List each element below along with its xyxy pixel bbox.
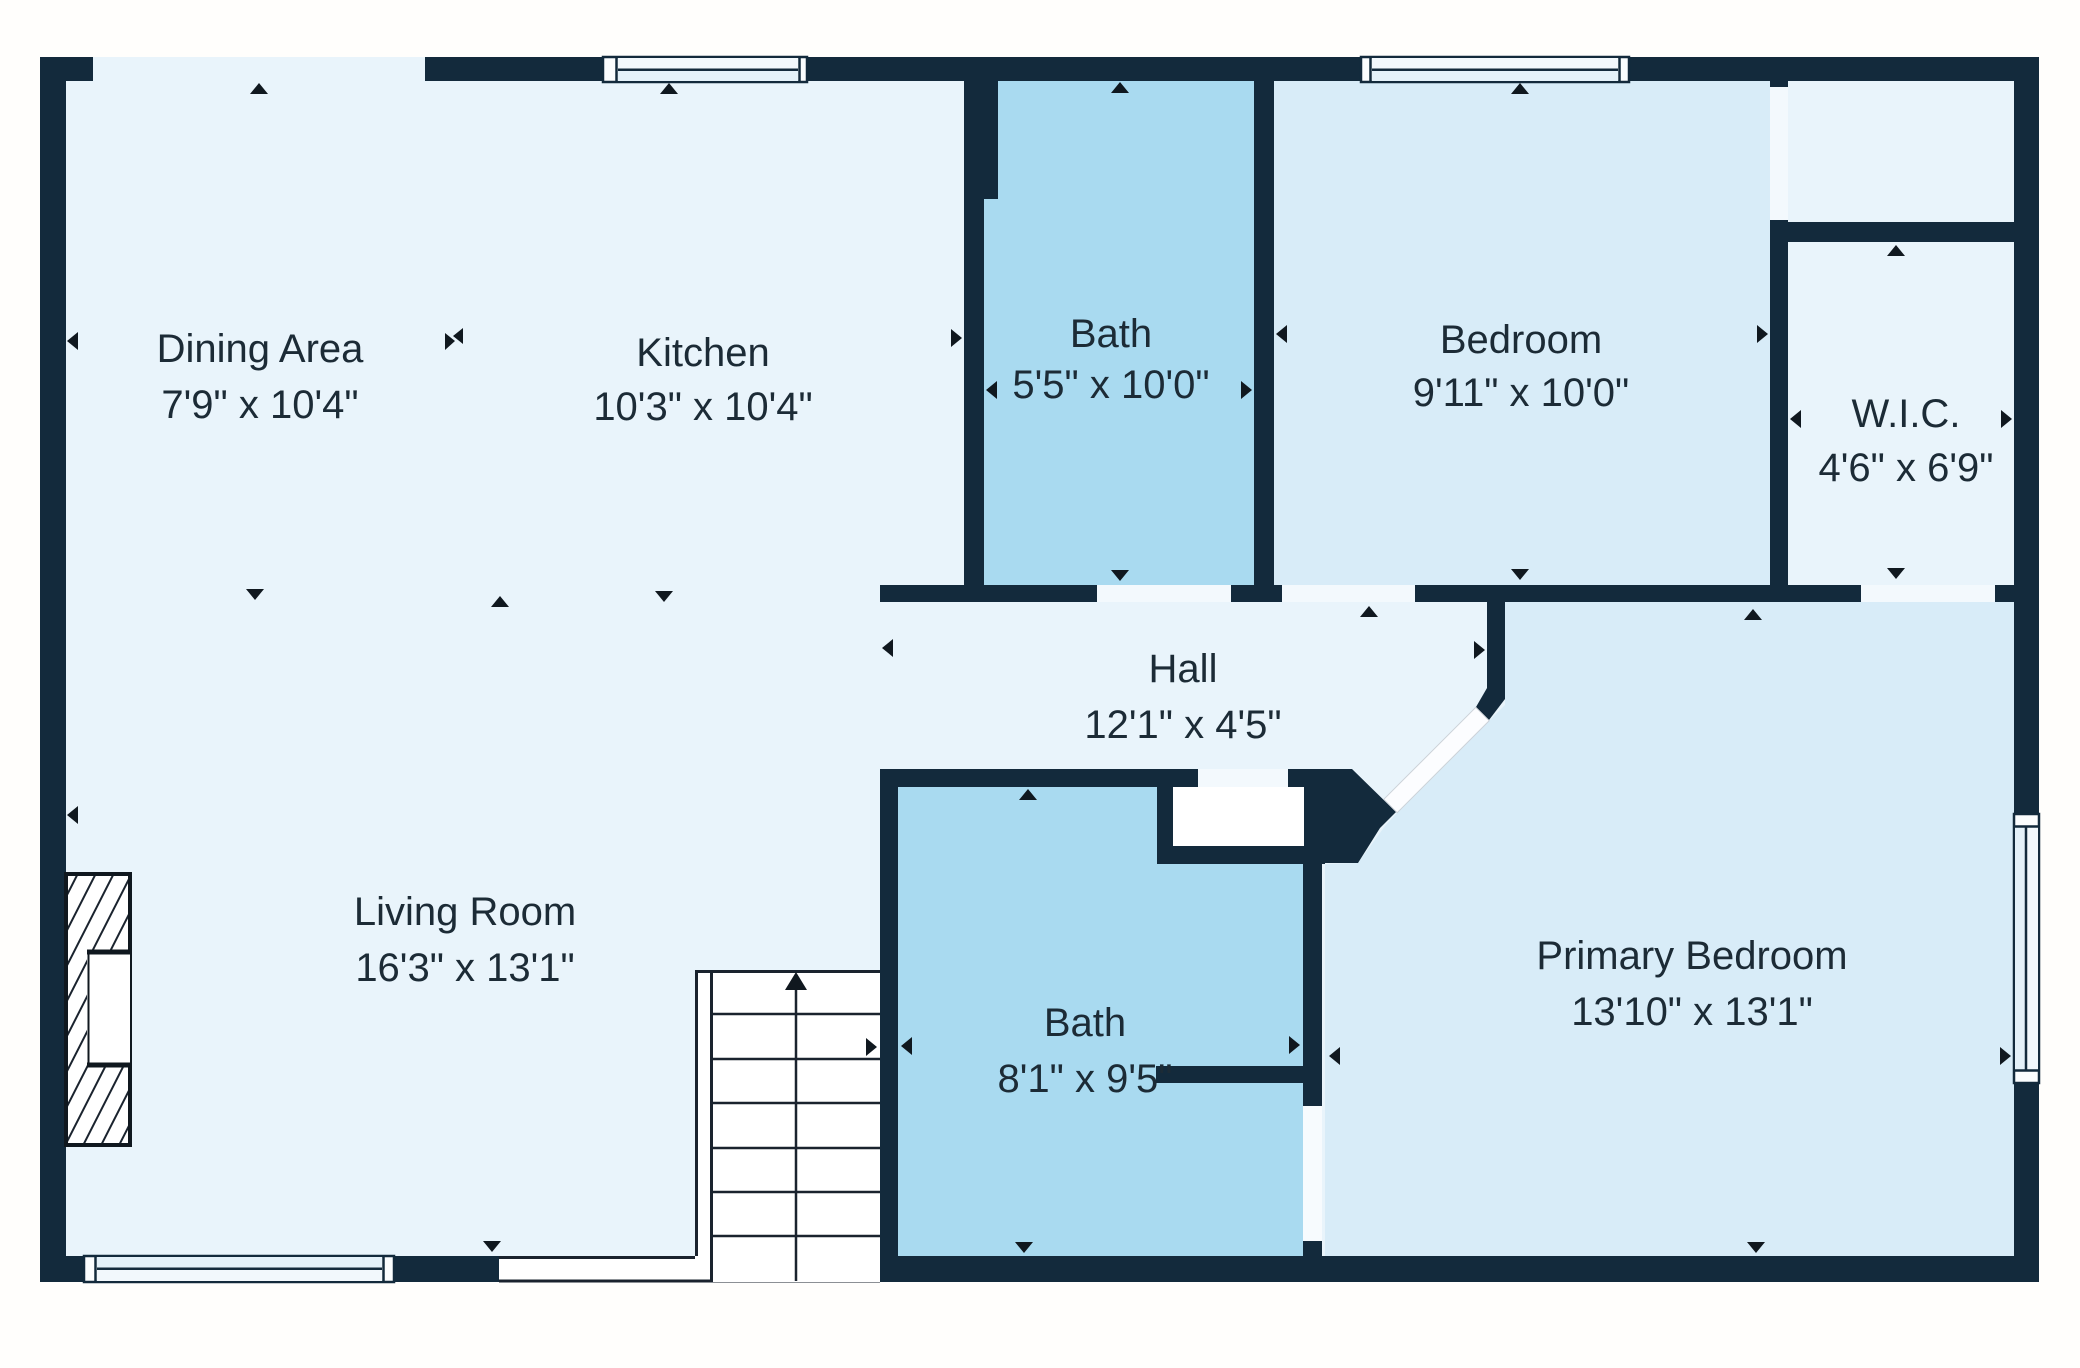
svg-text:10'3" x 10'4": 10'3" x 10'4" — [593, 385, 812, 429]
svg-text:16'3" x 13'1": 16'3" x 13'1" — [355, 946, 574, 990]
svg-text:Kitchen: Kitchen — [636, 331, 769, 375]
svg-text:7'9" x 10'4": 7'9" x 10'4" — [161, 383, 358, 427]
svg-text:Dining Area: Dining Area — [157, 327, 365, 371]
svg-text:Bedroom: Bedroom — [1440, 318, 1602, 362]
svg-text:12'1" x 4'5": 12'1" x 4'5" — [1084, 703, 1281, 747]
svg-text:Bath: Bath — [1070, 312, 1152, 356]
svg-text:4'6" x 6'9": 4'6" x 6'9" — [1819, 446, 1994, 490]
svg-text:W.I.C.: W.I.C. — [1852, 392, 1961, 436]
svg-text:13'10" x 13'1": 13'10" x 13'1" — [1571, 990, 1813, 1034]
svg-text:Hall: Hall — [1149, 647, 1218, 691]
svg-text:8'1" x 9'5": 8'1" x 9'5" — [998, 1057, 1173, 1101]
svg-text:Bath: Bath — [1044, 1001, 1126, 1045]
svg-text:5'5" x 10'0": 5'5" x 10'0" — [1012, 363, 1209, 407]
svg-text:Primary Bedroom: Primary Bedroom — [1536, 934, 1847, 978]
svg-text:Living Room: Living Room — [354, 890, 576, 934]
svg-text:9'11" x 10'0": 9'11" x 10'0" — [1413, 371, 1629, 415]
